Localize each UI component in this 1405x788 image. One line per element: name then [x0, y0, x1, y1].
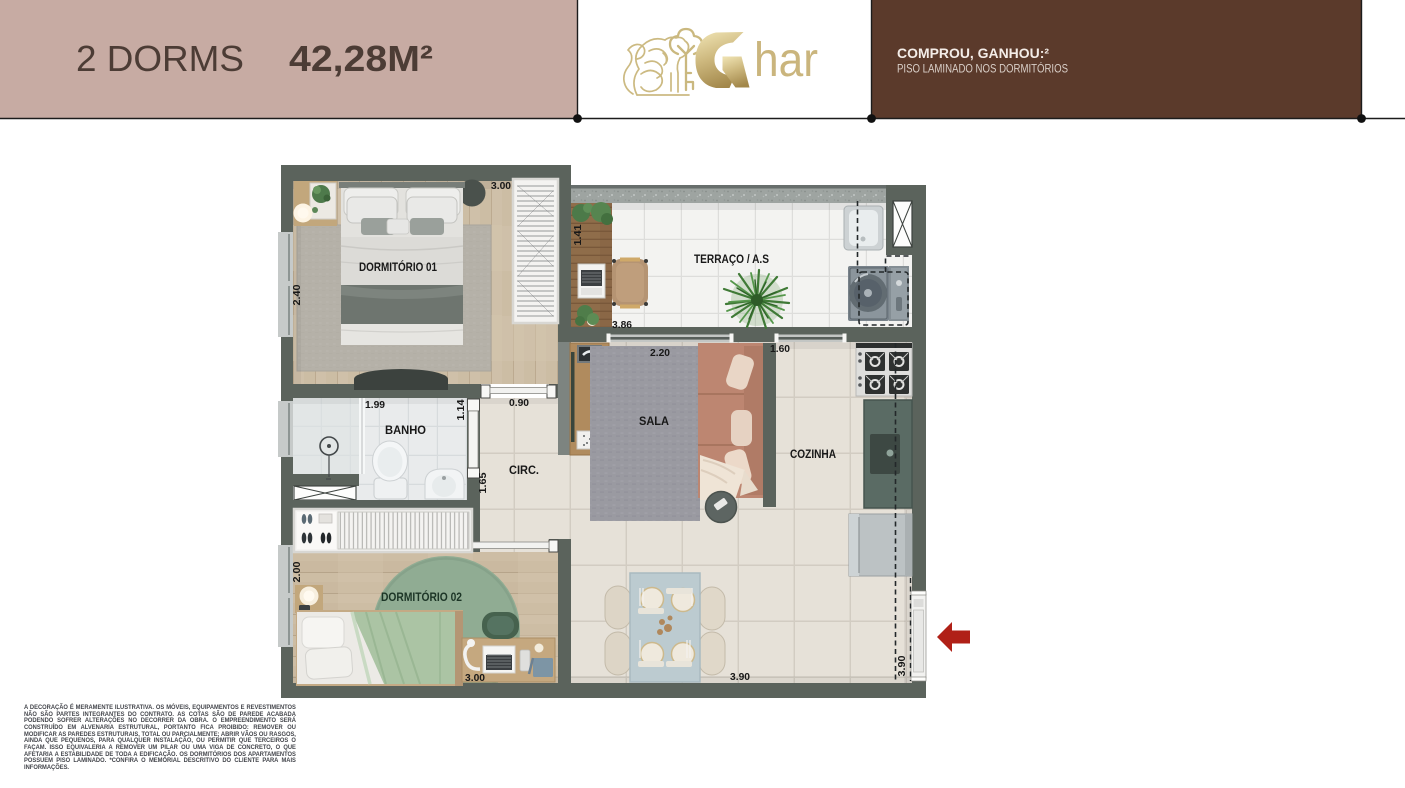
- svg-text:1.65: 1.65: [477, 472, 489, 493]
- svg-text:1.99: 1.99: [365, 399, 385, 411]
- svg-text:2.40: 2.40: [291, 284, 303, 305]
- svg-text:2.20: 2.20: [650, 347, 670, 359]
- svg-text:1.41: 1.41: [572, 224, 584, 245]
- svg-text:har: har: [754, 34, 818, 87]
- svg-text:PISO LAMINADO NOS DORMITÓRIOS: PISO LAMINADO NOS DORMITÓRIOS: [897, 63, 1068, 76]
- svg-text:3.86: 3.86: [612, 319, 632, 331]
- svg-text:3.90: 3.90: [896, 655, 908, 676]
- svg-text:2 DORMS: 2 DORMS: [76, 38, 244, 79]
- svg-text:2.00: 2.00: [291, 561, 303, 582]
- svg-text:TERRAÇO / A.S: TERRAÇO / A.S: [694, 254, 769, 266]
- svg-text:CIRC.: CIRC.: [509, 465, 539, 477]
- svg-text:3.00: 3.00: [465, 672, 485, 684]
- svg-text:0.90: 0.90: [509, 397, 529, 409]
- svg-text:42,28M²: 42,28M²: [289, 38, 433, 79]
- svg-text:1.14: 1.14: [455, 399, 467, 420]
- svg-text:COZINHA: COZINHA: [790, 449, 836, 461]
- svg-text:DORMITÓRIO 02: DORMITÓRIO 02: [381, 591, 462, 604]
- svg-text:SALA: SALA: [639, 416, 669, 428]
- svg-text:3.00: 3.00: [491, 180, 511, 192]
- svg-text:BANHO: BANHO: [385, 425, 426, 437]
- svg-text:DORMITÓRIO 01: DORMITÓRIO 01: [359, 261, 438, 274]
- svg-text:1.60: 1.60: [770, 343, 790, 355]
- svg-text:3.90: 3.90: [730, 671, 750, 683]
- svg-text:COMPROU, GANHOU:²: COMPROU, GANHOU:²: [897, 45, 1049, 61]
